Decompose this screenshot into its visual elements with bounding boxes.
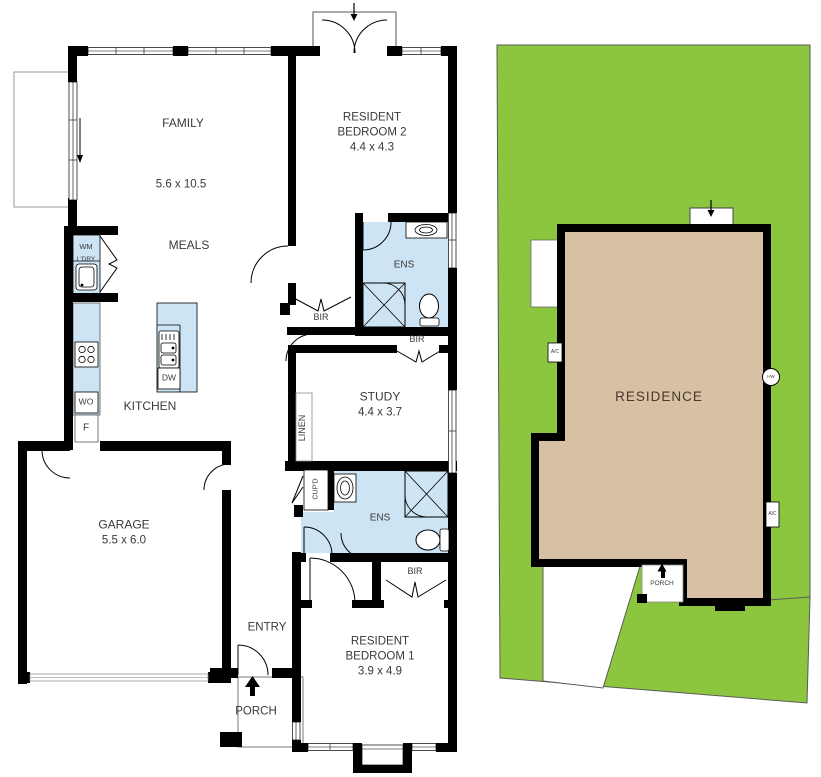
bedroom1-name-line1: RESIDENT xyxy=(345,635,414,650)
floorplan-page: FAMILY 5.6 x 10.5 MEALS RESIDENT BEDROOM… xyxy=(0,0,821,777)
ensuite-upper-label: ENS xyxy=(394,259,415,272)
bedroom1-name-line2: BEDROOM 1 xyxy=(345,650,414,665)
bedroom1-label: RESIDENT BEDROOM 1 3.9 x 4.9 xyxy=(345,635,414,680)
ac-right-label: A/C xyxy=(768,511,776,518)
site-porch-post xyxy=(637,594,647,603)
site-left-pad xyxy=(531,240,561,307)
toilet-lower xyxy=(416,530,440,550)
wall-oven-label: WO xyxy=(79,396,94,407)
site-plan xyxy=(497,45,810,703)
family-dim: 5.6 x 10.5 xyxy=(156,178,207,193)
bedroom1-door xyxy=(310,558,355,603)
entry-label: ENTRY xyxy=(248,621,287,636)
garage-dim: 5.5 x 6.0 xyxy=(98,533,149,548)
bedroom1-dim: 3.9 x 4.9 xyxy=(345,664,414,679)
family-slider-arrow-icon xyxy=(77,118,83,163)
bedroom2-door-left xyxy=(322,20,355,53)
kitchen-label: KITCHEN xyxy=(124,399,177,415)
toilet-upper xyxy=(420,294,439,318)
hot-water-label: HW xyxy=(767,374,775,380)
bedroom2-door-right xyxy=(354,20,387,53)
study-robe-bifold xyxy=(397,351,440,362)
laundry-label: L'DRY xyxy=(77,256,95,264)
study-dim: 4.4 x 3.7 xyxy=(358,405,402,420)
meals-door xyxy=(251,246,288,283)
site-porch-label: PORCH xyxy=(650,580,673,588)
bedroom2-name-line1: RESIDENT xyxy=(337,111,406,126)
bedroom1-robe-bifold xyxy=(386,580,446,597)
bedroom2-robe-bifold xyxy=(292,297,351,311)
cooktop xyxy=(75,342,98,367)
robe-bedroom2-label: BIR xyxy=(313,312,328,324)
dishwasher-label: DW xyxy=(162,372,176,383)
bedroom2-name-line2: BEDROOM 2 xyxy=(337,126,406,141)
residence-outline xyxy=(535,228,767,602)
entry-door xyxy=(238,645,268,675)
ensuite-lower-label: ENS xyxy=(370,512,391,525)
garage-door-left xyxy=(42,450,70,478)
study-name: STUDY xyxy=(358,390,402,406)
residence-label: RESIDENCE xyxy=(615,388,703,406)
cupboard-label: CUP'D xyxy=(311,478,320,499)
laundry-bifold xyxy=(100,236,117,292)
study-label: STUDY 4.4 x 3.7 xyxy=(358,390,402,421)
outdoor-area-outline xyxy=(14,72,70,207)
garage-label: GARAGE 5.5 x 6.0 xyxy=(98,518,149,549)
bedroom2-dim: 4.4 x 4.3 xyxy=(337,140,406,155)
bedroom2-label: RESIDENT BEDROOM 2 4.4 x 4.3 xyxy=(337,111,406,156)
garage-door-right xyxy=(204,464,230,490)
garage-name: GARAGE xyxy=(98,518,149,534)
fridge-label: F xyxy=(83,422,89,435)
porch-label: PORCH xyxy=(235,705,277,720)
washing-machine-label: WM xyxy=(79,242,92,252)
porch-entry-arrow-icon xyxy=(245,676,260,696)
meals-label: MEALS xyxy=(169,238,210,254)
site-bay-window xyxy=(715,598,745,611)
family-label: FAMILY xyxy=(162,116,204,132)
robe-bedroom1-label: BIR xyxy=(407,566,422,578)
robe-study-label: BIR xyxy=(409,334,424,346)
ac-left-label: A/C xyxy=(551,349,559,356)
linen-label: LINEN xyxy=(297,415,309,442)
